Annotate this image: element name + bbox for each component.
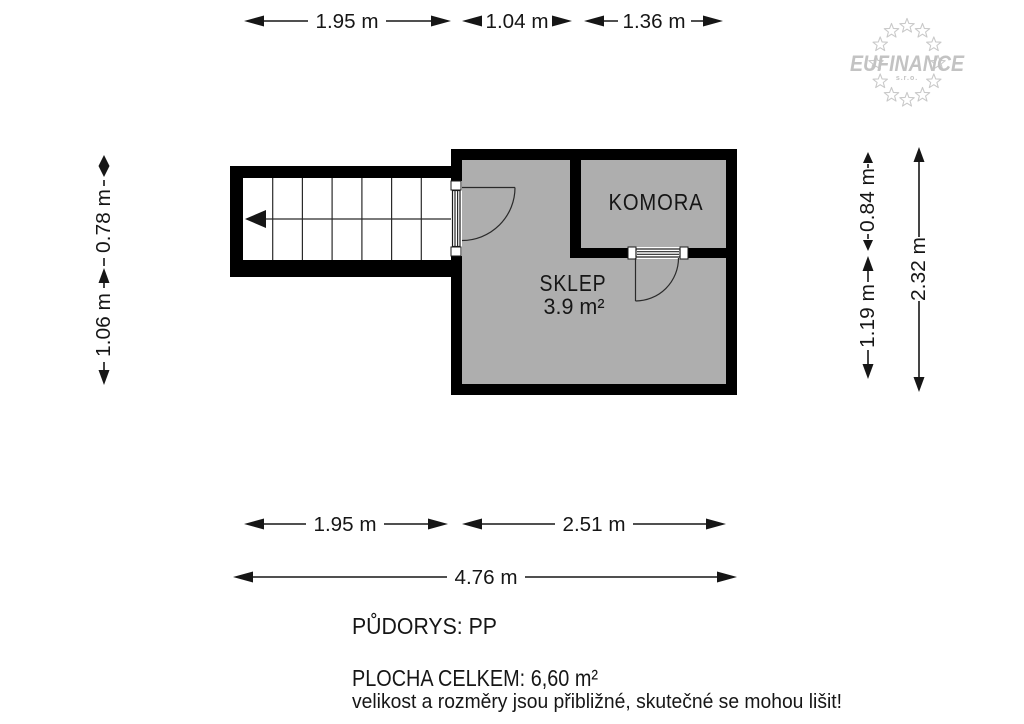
dim-label: 2.32 m xyxy=(908,237,930,301)
dim-arrow-right-icon xyxy=(706,519,726,530)
euro-star-icon xyxy=(884,87,898,101)
logo-name: EUFINANCE xyxy=(850,51,965,76)
room-label-sklep: SKLEP xyxy=(540,270,607,296)
door-jamb xyxy=(628,247,636,259)
door-jamb xyxy=(680,247,688,259)
dim-arrow-right-icon xyxy=(717,572,737,583)
dim-arrow-down-icon xyxy=(914,377,925,392)
dim-arrow-up-icon xyxy=(99,155,110,166)
dim-label: 0.84 m xyxy=(857,168,879,232)
dim-arrow-up-icon xyxy=(914,147,925,162)
dimension-left-1: 0.78 m xyxy=(93,155,115,266)
door-jamb xyxy=(451,181,461,190)
floorplan-canvas: EUFINANCE s.r.o. xyxy=(0,0,1024,724)
euro-star-icon xyxy=(915,23,929,37)
dimension-top-3: 1.36 m xyxy=(584,11,723,33)
total-area-label: PLOCHA CELKEM: 6,60 m² xyxy=(352,665,598,691)
dim-arrow-up-icon xyxy=(99,268,110,283)
dimension-top-1: 1.95 m xyxy=(244,11,451,33)
room-area-sklep: 3.9 m² xyxy=(544,294,605,319)
footer: PŮDORYS: PP PLOCHA CELKEM: 6,60 m² velik… xyxy=(352,611,842,713)
dimension-right-total: 2.32 m xyxy=(908,147,930,392)
dimension-top-2: 1.04 m xyxy=(462,11,572,33)
dim-arrow-right-icon xyxy=(428,519,448,530)
dim-arrow-right-icon xyxy=(431,16,451,27)
dimension-left-2: 1.06 m xyxy=(93,268,115,385)
door-frame xyxy=(636,249,680,257)
dim-label: 2.51 m xyxy=(563,514,626,536)
main-block: KOMORA SKLEP 3.9 m² xyxy=(451,149,737,395)
dimension-right-2: 1.19 m xyxy=(857,256,879,379)
euro-star-icon xyxy=(900,92,914,106)
dim-arrow-down-icon xyxy=(863,364,874,379)
door-frame xyxy=(453,191,461,247)
euro-star-icon xyxy=(927,37,941,51)
dim-arrow-up-icon xyxy=(863,256,874,271)
logo-suffix: s.r.o. xyxy=(896,75,918,82)
dim-arrow-right-icon xyxy=(552,16,572,27)
dim-label: 1.36 m xyxy=(623,11,686,33)
dim-label: 0.78 m xyxy=(93,189,115,253)
stairs-section xyxy=(230,166,451,277)
komora-divider-wall xyxy=(570,160,581,258)
dim-label: 1.95 m xyxy=(314,514,377,536)
dim-arrow-right-icon xyxy=(703,16,723,27)
dimension-bottom-1: 1.95 m xyxy=(244,514,448,536)
floor-title: PŮDORYS: PP xyxy=(352,611,497,639)
euro-star-icon xyxy=(884,23,898,37)
door-jamb xyxy=(451,247,461,256)
euro-star-icon xyxy=(915,87,929,101)
dimension-bottom-total: 4.76 m xyxy=(233,567,737,589)
floorplan-page: EUFINANCE s.r.o. xyxy=(0,0,1024,724)
dim-arrow-down-icon xyxy=(99,166,110,177)
room-label-komora: KOMORA xyxy=(609,189,704,215)
dim-label: 1.95 m xyxy=(316,11,379,33)
komora-bottom-wall-left xyxy=(570,248,628,258)
dim-arrow-down-icon xyxy=(99,370,110,385)
dim-label: 1.19 m xyxy=(857,284,879,348)
komora-bottom-wall-right xyxy=(688,248,726,258)
dimension-right-1: 0.84 m xyxy=(857,152,879,251)
dim-label: 1.06 m xyxy=(93,293,115,357)
dim-label: 4.76 m xyxy=(455,567,518,589)
eufinance-logo: EUFINANCE s.r.o. xyxy=(850,18,965,106)
dim-label: 1.04 m xyxy=(486,11,549,33)
dim-arrow-down-icon xyxy=(863,240,873,251)
euro-star-icon xyxy=(873,37,887,51)
dim-arrow-up-icon xyxy=(863,152,873,163)
euro-star-icon xyxy=(900,18,914,32)
disclaimer-text: velikost a rozměry jsou přibližné, skute… xyxy=(352,691,842,713)
dimension-bottom-2: 2.51 m xyxy=(462,514,726,536)
